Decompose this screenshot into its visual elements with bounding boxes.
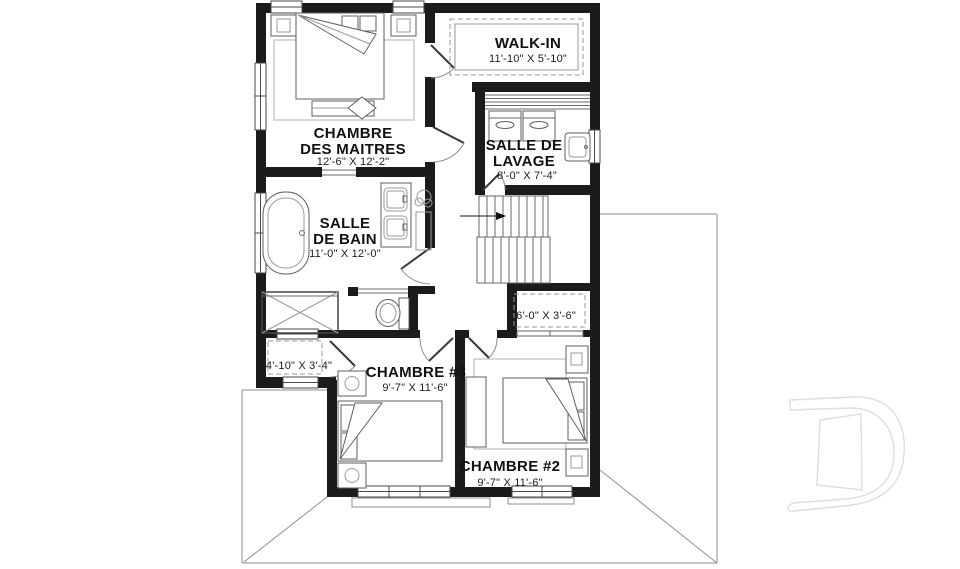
dims-bedroom3: 9'-7" X 11'-6" — [382, 382, 447, 394]
bedroom2-nightstand-top — [566, 346, 588, 373]
bedroom3-bed — [338, 401, 442, 461]
bedroom2-nightstand-bottom — [566, 449, 588, 476]
master-nightstand-left — [271, 15, 296, 36]
bedroom2-bed — [503, 378, 587, 443]
window-closet3 — [283, 377, 318, 388]
dims-closet-bedroom2: 6'-0" X 3'-6" — [516, 310, 576, 322]
master-bed — [296, 13, 384, 99]
toilet — [376, 298, 409, 329]
master-nightstand-right — [391, 15, 416, 36]
label-bathroom-line2: DE BAIN — [313, 231, 377, 248]
bedroom3-nightstand-top — [338, 371, 366, 396]
window-master-top-left — [271, 1, 302, 13]
laundry-sink — [565, 133, 590, 161]
window-master-top-right — [393, 1, 424, 13]
dims-master: 12'-6" X 12'-2" — [317, 156, 390, 168]
window-master-left — [255, 63, 266, 130]
window-bedroom3-bottom — [358, 486, 450, 497]
label-bedroom2: CHAMBRE #2 — [460, 458, 561, 475]
bifold-door-closet-bedroom2 — [517, 331, 583, 336]
dims-bedroom2: 9'-7" X 11'-6" — [477, 477, 542, 489]
label-bedroom3: CHAMBRE #3 — [366, 364, 467, 381]
vanity-double-sink — [381, 183, 411, 247]
bedroom3-nightstand-bottom — [338, 463, 366, 488]
label-laundry-line1: SALLE DE — [486, 137, 563, 154]
label-master-line1: CHAMBRE — [314, 125, 393, 142]
dims-walkin: 11'-10" X 5'-10" — [489, 53, 567, 65]
window-laundry-right — [589, 130, 600, 163]
bedroom2-dresser — [466, 377, 486, 447]
label-bathroom-line1: SALLE — [320, 215, 371, 232]
dims-closet-bedroom3: 4'-10" X 3'-4" — [266, 360, 332, 372]
dims-bathroom: 11'-0" X 12'-0" — [309, 248, 381, 260]
label-laundry-line2: LAVAGE — [493, 153, 555, 170]
window-bathroom-bottom — [277, 329, 318, 339]
dims-laundry: 8'-0" X 7'-4" — [497, 170, 557, 182]
bathtub — [263, 192, 309, 274]
label-walkin: WALK-IN — [495, 35, 561, 52]
floor-plan-canvas: WALK-IN 11'-10" X 5'-10" CHAMBRE DES MAI… — [0, 0, 960, 569]
